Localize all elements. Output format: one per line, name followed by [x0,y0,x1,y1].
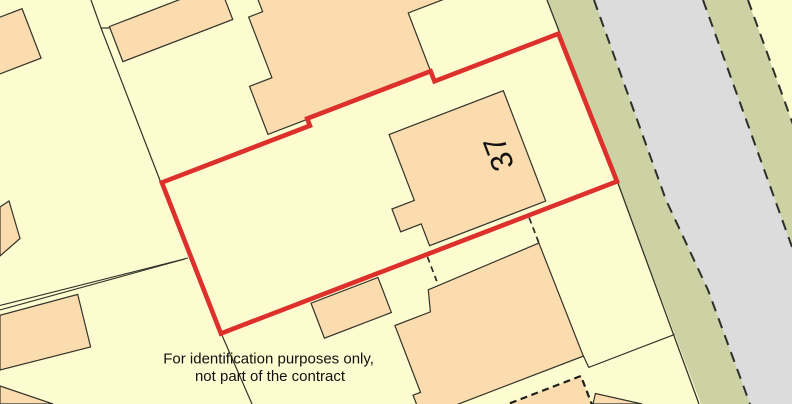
svg-text:For identification purposes on: For identification purposes only, [163,351,374,368]
svg-text:not part of the contract: not part of the contract [195,368,346,385]
